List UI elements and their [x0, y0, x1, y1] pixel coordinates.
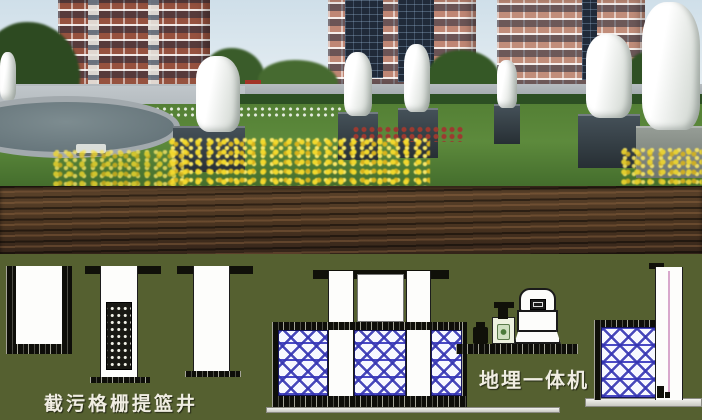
pump-unit-cap: [476, 322, 485, 327]
dosing-bottle-spout: [494, 302, 514, 308]
tank-access-shaft-right: [406, 271, 431, 398]
label-buried-integrated-unit: 地埋一体机: [479, 364, 589, 393]
tank-media-section: [278, 330, 328, 396]
building-left-brick: [58, 0, 210, 93]
statue: [586, 34, 632, 118]
yellow-flower-bed: [168, 138, 430, 188]
inspection-well-shaft: [193, 266, 230, 372]
discharge-pump: [657, 386, 664, 398]
statue: [404, 44, 430, 112]
illustration-buried-sewage-system: 截污格栅提篮井 地埋一体机: [0, 0, 702, 420]
statue-pedestal: [494, 104, 520, 144]
right-tank-wall-left: [594, 320, 601, 400]
landscape-photo: [0, 0, 702, 188]
fountain-statue: [0, 52, 16, 100]
grille-basket: [106, 302, 132, 370]
statue: [344, 52, 372, 116]
tank-access-shaft-left: [328, 271, 354, 398]
right-tank-media: [601, 327, 657, 398]
label-grille-basket-well: 截污格栅提篮井: [44, 389, 198, 416]
statue: [497, 60, 517, 108]
blower-vent: [530, 299, 546, 310]
building-left-balcony-stack: [88, 0, 99, 90]
soil-layer: [0, 186, 702, 254]
statue: [196, 56, 240, 132]
tank-foundation: [266, 407, 560, 413]
grille-well-base: [90, 377, 150, 383]
blower-skirt: [514, 330, 561, 344]
dosing-bottle-label: [497, 324, 510, 340]
tank-top-band: [272, 322, 467, 330]
blower-body: [517, 310, 558, 332]
yellow-flower-bed: [620, 148, 702, 188]
equipment-platform: [456, 344, 578, 354]
right-tank-foundation: [585, 398, 702, 407]
discharge-level-line: [668, 271, 670, 396]
building-left-balcony-stack: [148, 0, 159, 90]
collection-well-cavity: [16, 266, 62, 344]
inspection-well-base: [185, 371, 241, 377]
discharge-pump-foot: [665, 392, 670, 398]
tank-media-section: [431, 330, 462, 396]
statue-tall-right: [642, 2, 700, 130]
tank-bottom-band: [272, 396, 467, 407]
pump-unit: [473, 327, 488, 344]
right-tank-top-band: [594, 320, 657, 327]
tank-media-section: [354, 330, 406, 396]
tank-wall-right: [462, 322, 467, 407]
tank-head-chamber: [357, 274, 404, 322]
yellow-flower-bed: [52, 150, 184, 188]
